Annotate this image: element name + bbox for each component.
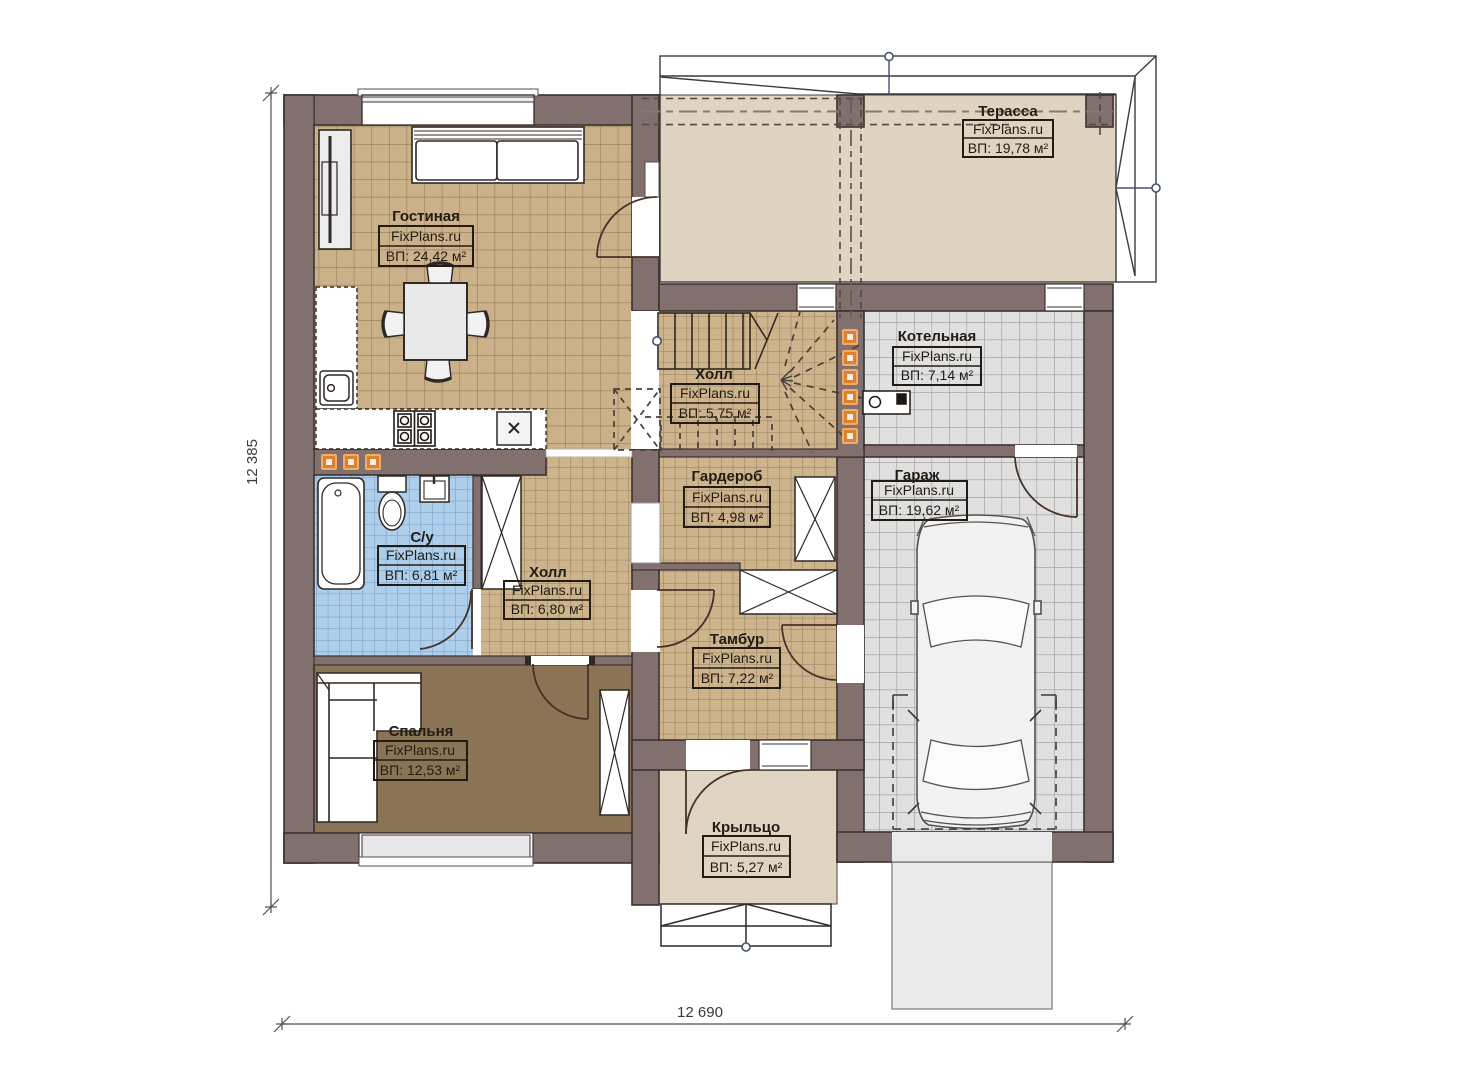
svg-text:ВП: 5,75 м²: ВП: 5,75 м²	[679, 405, 752, 421]
svg-text:Котельная: Котельная	[898, 328, 977, 345]
svg-text:ВП: 19,78 м²: ВП: 19,78 м²	[968, 140, 1049, 156]
svg-text:FixPlans.ru: FixPlans.ru	[386, 547, 456, 563]
svg-text:FixPlans.ru: FixPlans.ru	[884, 482, 954, 498]
svg-text:FixPlans.ru: FixPlans.ru	[512, 582, 582, 598]
svg-text:Холл: Холл	[695, 366, 733, 383]
svg-text:ВП: 24,42 м²: ВП: 24,42 м²	[386, 248, 467, 264]
svg-text:ВП: 6,81 м²: ВП: 6,81 м²	[385, 567, 458, 583]
svg-text:ВП: 7,22 м²: ВП: 7,22 м²	[701, 670, 774, 686]
svg-text:12 690: 12 690	[677, 1004, 723, 1021]
svg-text:ВП: 7,14 м²: ВП: 7,14 м²	[901, 367, 974, 383]
svg-text:Крыльцо: Крыльцо	[712, 819, 780, 836]
svg-text:FixPlans.ru: FixPlans.ru	[711, 838, 781, 854]
svg-text:FixPlans.ru: FixPlans.ru	[391, 228, 461, 244]
svg-text:ВП: 19,62 м²: ВП: 19,62 м²	[879, 502, 960, 518]
svg-text:ВП: 4,98 м²: ВП: 4,98 м²	[691, 509, 764, 525]
svg-text:FixPlans.ru: FixPlans.ru	[973, 121, 1043, 137]
svg-text:FixPlans.ru: FixPlans.ru	[385, 742, 455, 758]
svg-text:FixPlans.ru: FixPlans.ru	[702, 650, 772, 666]
svg-text:FixPlans.ru: FixPlans.ru	[902, 348, 972, 364]
svg-text:Гостиная: Гостиная	[392, 208, 460, 225]
svg-text:FixPlans.ru: FixPlans.ru	[692, 489, 762, 505]
svg-text:ВП: 5,27 м²: ВП: 5,27 м²	[710, 859, 783, 875]
svg-text:ВП: 12,53 м²: ВП: 12,53 м²	[380, 762, 461, 778]
svg-text:Гардероб: Гардероб	[692, 468, 763, 485]
svg-text:ВП: 6,80 м²: ВП: 6,80 м²	[511, 601, 584, 617]
svg-text:FixPlans.ru: FixPlans.ru	[680, 385, 750, 401]
svg-text:12 385: 12 385	[244, 439, 261, 485]
svg-text:Терасса: Терасса	[978, 103, 1038, 120]
svg-text:Холл: Холл	[529, 564, 567, 581]
svg-text:С/у: С/у	[410, 529, 434, 546]
svg-text:Спальня: Спальня	[389, 723, 454, 740]
svg-text:Тамбур: Тамбур	[710, 631, 764, 648]
